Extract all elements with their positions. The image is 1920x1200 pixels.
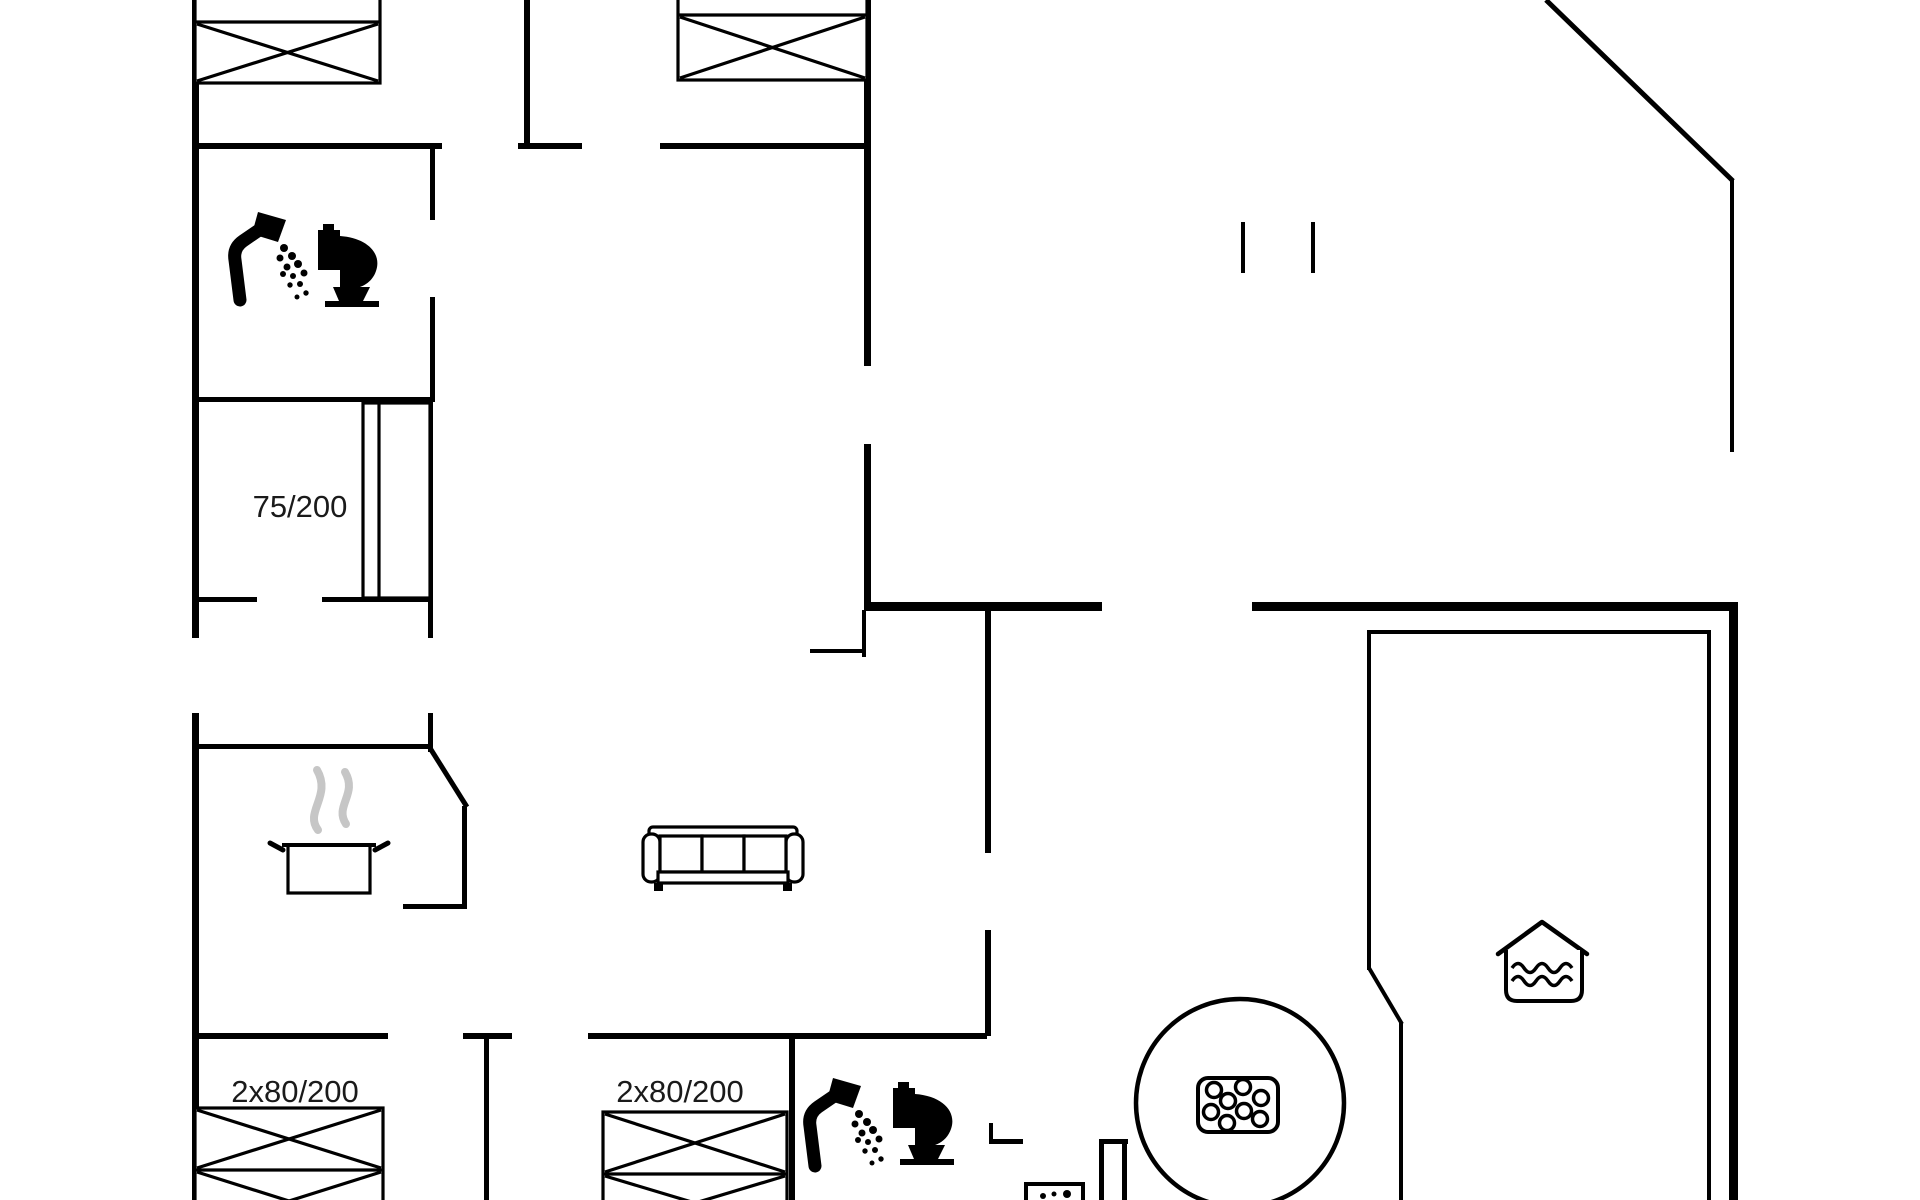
sofa-icon [643, 827, 803, 891]
shower-icon-lower-bathroom [810, 1078, 884, 1166]
bed-single-75x200 [363, 403, 430, 598]
steam-icon [314, 770, 349, 830]
bed-size-label-bottom-center: 2x80/200 [616, 1074, 744, 1109]
bed-double-bottom-left [195, 1108, 383, 1200]
diagonal-exterior-wall [1546, 0, 1733, 181]
sauna-diagonal-wall [1369, 968, 1402, 1024]
floor-plan: 75/200 2x80/200 2x80/200 [0, 0, 1920, 1200]
toilet-icon-lower-bathroom [893, 1082, 954, 1165]
sauna-room-walls [1367, 630, 1711, 1200]
bed-double-top-left [195, 0, 380, 83]
washing-machine-icon [1026, 1184, 1083, 1200]
cooking-pot-icon [270, 843, 388, 893]
kitchen-diagonal-wall [430, 748, 467, 807]
bed-double-bottom-center [603, 1112, 787, 1200]
shower-icon-upper-bathroom [235, 212, 309, 300]
door-opening-ticks [1241, 222, 1315, 273]
bed-size-label-single: 75/200 [253, 489, 348, 524]
sauna-icon [1498, 922, 1587, 1001]
bed-double-top-center [678, 0, 867, 80]
toilet-icon-upper-bathroom [318, 224, 379, 307]
hot-tub-icon [1136, 999, 1344, 1200]
floor-plan-canvas: 75/200 2x80/200 2x80/200 [0, 0, 1920, 1200]
bed-size-label-bottom-left: 2x80/200 [231, 1074, 359, 1109]
bubble-jets-icon [1198, 1078, 1278, 1132]
